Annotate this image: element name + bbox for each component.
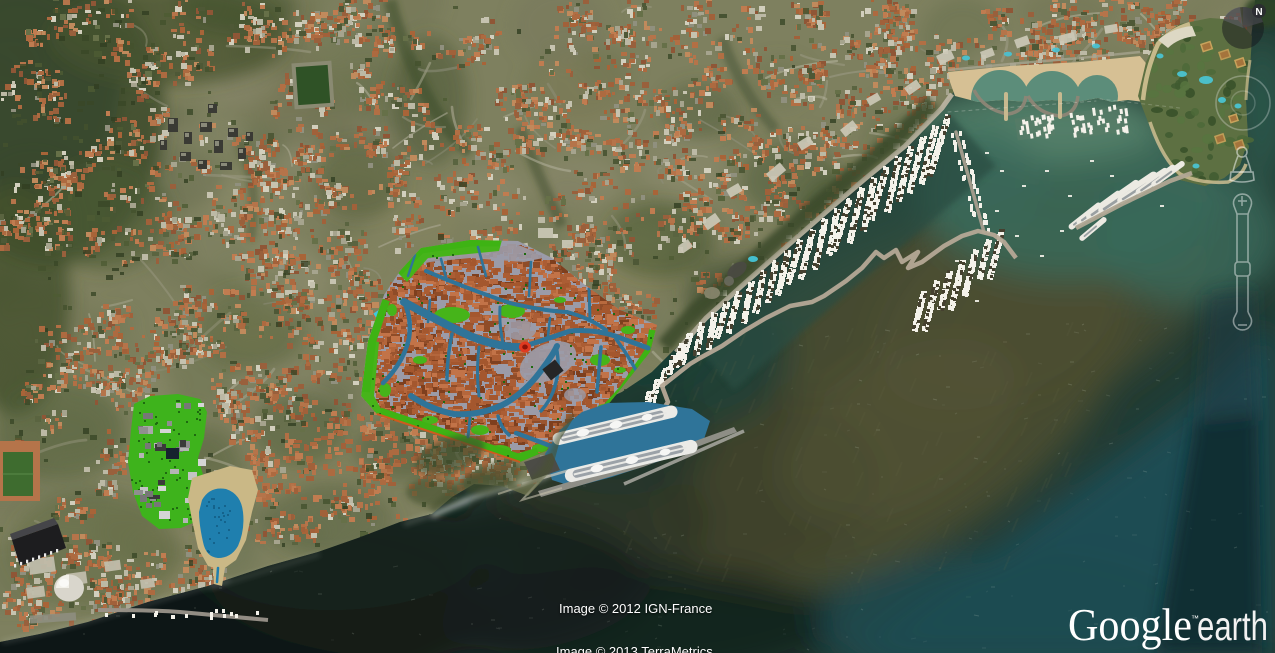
svg-text:Google: Google bbox=[1068, 599, 1192, 650]
svg-text:Image © 2012 IGN-France: Image © 2012 IGN-France bbox=[559, 601, 712, 616]
svg-text:earth: earth bbox=[1197, 603, 1268, 649]
svg-text:Image © 2013 TerraMetrics: Image © 2013 TerraMetrics bbox=[556, 644, 713, 653]
svg-text:N: N bbox=[1255, 7, 1262, 18]
